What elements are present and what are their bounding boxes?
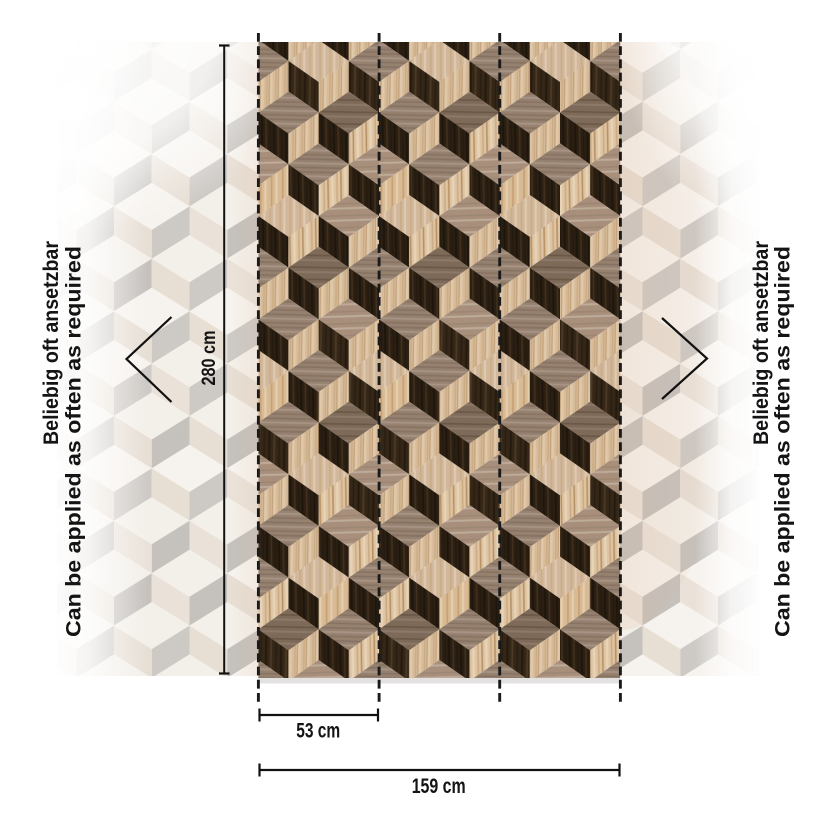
- svg-text:Can be applied as often as req: Can be applied as often as required: [771, 246, 795, 637]
- svg-text:280 cm: 280 cm: [199, 331, 220, 386]
- svg-text:Can be applied as often as req: Can be applied as often as required: [62, 246, 86, 637]
- svg-text:Beliebig oft ansetzbar: Beliebig oft ansetzbar: [39, 240, 63, 445]
- svg-text:Beliebig oft ansetzbar: Beliebig oft ansetzbar: [749, 240, 773, 445]
- svg-text:159 cm: 159 cm: [412, 774, 466, 798]
- svg-text:53 cm: 53 cm: [296, 719, 340, 742]
